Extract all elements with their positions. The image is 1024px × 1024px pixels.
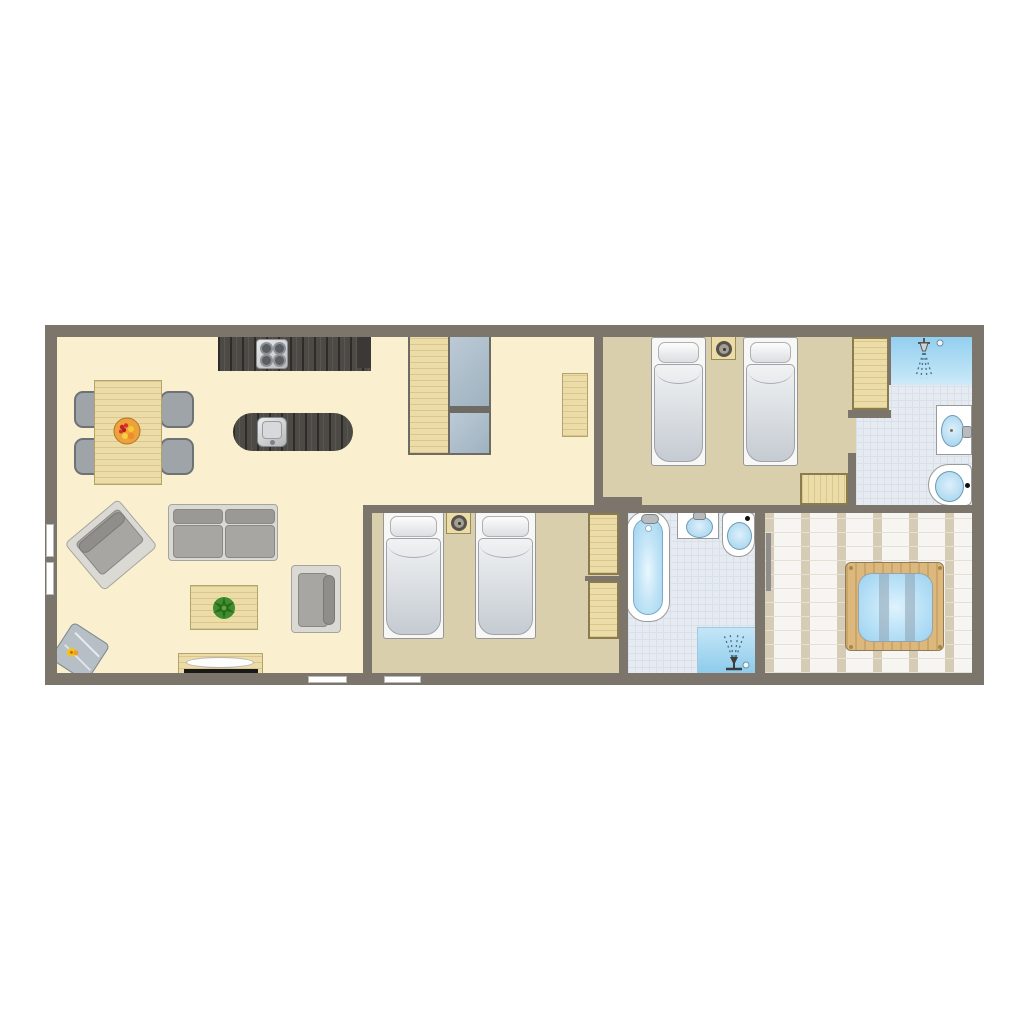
sofa-seat-cushion [173, 525, 223, 558]
pillow [658, 342, 699, 363]
bath-faucet-icon [641, 514, 659, 524]
bedroom2-wardrobe [588, 513, 619, 575]
nightstand [711, 336, 736, 360]
bath-drain [645, 525, 652, 532]
sofa-back-cushion [225, 509, 275, 524]
family-toilet [722, 512, 755, 557]
pillow [750, 342, 791, 363]
tub-screw [849, 645, 853, 649]
closet-wood-door [410, 336, 448, 453]
plant-icon [210, 594, 238, 622]
duvet [654, 364, 703, 462]
ensuite-toilet [928, 464, 972, 506]
wall-ensuite-door-jamb [848, 453, 856, 505]
flush-button [965, 483, 970, 488]
wall-bathroom-terrace [755, 513, 765, 685]
single-bed [651, 337, 706, 466]
burner-icon [273, 354, 286, 367]
duvet [746, 364, 795, 462]
duvet-fold [388, 545, 439, 558]
armchair-backrest [323, 575, 335, 625]
faucet-icon [693, 512, 706, 520]
duvet-fold [748, 371, 793, 384]
hot-tub-water [858, 573, 933, 642]
nightstand [446, 511, 471, 534]
window-left-2 [46, 562, 54, 595]
wall-bedroom2-left [363, 505, 372, 685]
pillow [390, 516, 437, 537]
table-lamp-icon [716, 341, 732, 357]
exterior-wall-right [972, 325, 984, 685]
wall-south-of-bedrooms [363, 505, 972, 513]
floor-plan [0, 0, 1024, 1024]
closet-divider [448, 406, 489, 413]
table-lamp-icon [451, 515, 467, 531]
single-bed [475, 511, 536, 639]
dining-chair [160, 391, 194, 428]
sink-faucet-icon [270, 440, 275, 445]
ensuite-washbasin [936, 405, 972, 455]
tv-console-bowl [186, 657, 254, 668]
lamp-bulb [723, 348, 726, 351]
duvet-fold [656, 371, 701, 384]
cover-bar [879, 574, 889, 642]
duvet-fold [480, 545, 531, 558]
wall-stub-wardrobe [585, 576, 628, 581]
sofa-seat-cushion [225, 525, 275, 558]
tub-screw [938, 566, 942, 570]
hallway-closet [408, 334, 491, 455]
cooktop-icon [256, 339, 288, 369]
wall-stub-ensuite [848, 410, 891, 418]
flush-button [745, 516, 750, 521]
shower-sprayer-icon [712, 629, 756, 673]
kitchen-island [233, 413, 353, 451]
exterior-wall-bottom [45, 673, 984, 685]
pillow [482, 516, 529, 537]
duvet [478, 538, 533, 635]
kitchen-counter [218, 337, 371, 371]
tub-screw [849, 566, 853, 570]
corner-shower [697, 627, 757, 673]
toilet-bowl [727, 522, 752, 550]
faucet-icon [962, 426, 972, 438]
tub-screw [938, 645, 942, 649]
bedroom1-wardrobe [852, 337, 889, 410]
lamp-bulb [458, 522, 461, 525]
exterior-wall-top [45, 325, 984, 337]
window-left-1 [46, 524, 54, 557]
counter-end-panel [357, 337, 371, 368]
bedroom1-cabinet [800, 473, 848, 505]
fruit-bowl-icon [113, 417, 141, 445]
burner-icon [260, 354, 273, 367]
closet-mirror-door [448, 336, 489, 406]
single-bed [743, 337, 798, 466]
drain-dot [950, 429, 953, 432]
closet-mirror-door [448, 413, 489, 453]
wall-shower-nook [888, 337, 891, 385]
sink-basin [262, 421, 282, 439]
duvet [386, 538, 441, 635]
window-bottom-living [308, 676, 347, 683]
wall-bedroom2-bathroom [619, 513, 628, 685]
wall-bedroom1-south-thick [594, 497, 642, 505]
armchair [291, 565, 341, 633]
family-washbasin [677, 512, 719, 539]
exterior-wall-left [45, 325, 57, 685]
bedroom2-wardrobe [588, 581, 619, 639]
wall-hallway-bedroom1 [594, 335, 603, 513]
window-bottom-bedroom2 [384, 676, 421, 683]
cover-bar [905, 574, 915, 642]
dining-chair [160, 438, 194, 475]
shower-head-icon [910, 338, 946, 382]
bathtub-water [633, 518, 663, 615]
island-sink-icon [257, 417, 287, 447]
single-bed [383, 511, 444, 639]
hot-tub [845, 562, 944, 651]
terrace-rail [766, 533, 771, 591]
sofa [168, 504, 278, 561]
hallway-cabinet [562, 373, 588, 437]
bathtub [626, 511, 670, 622]
sofa-back-cushion [173, 509, 223, 524]
toilet-bowl [935, 471, 964, 502]
